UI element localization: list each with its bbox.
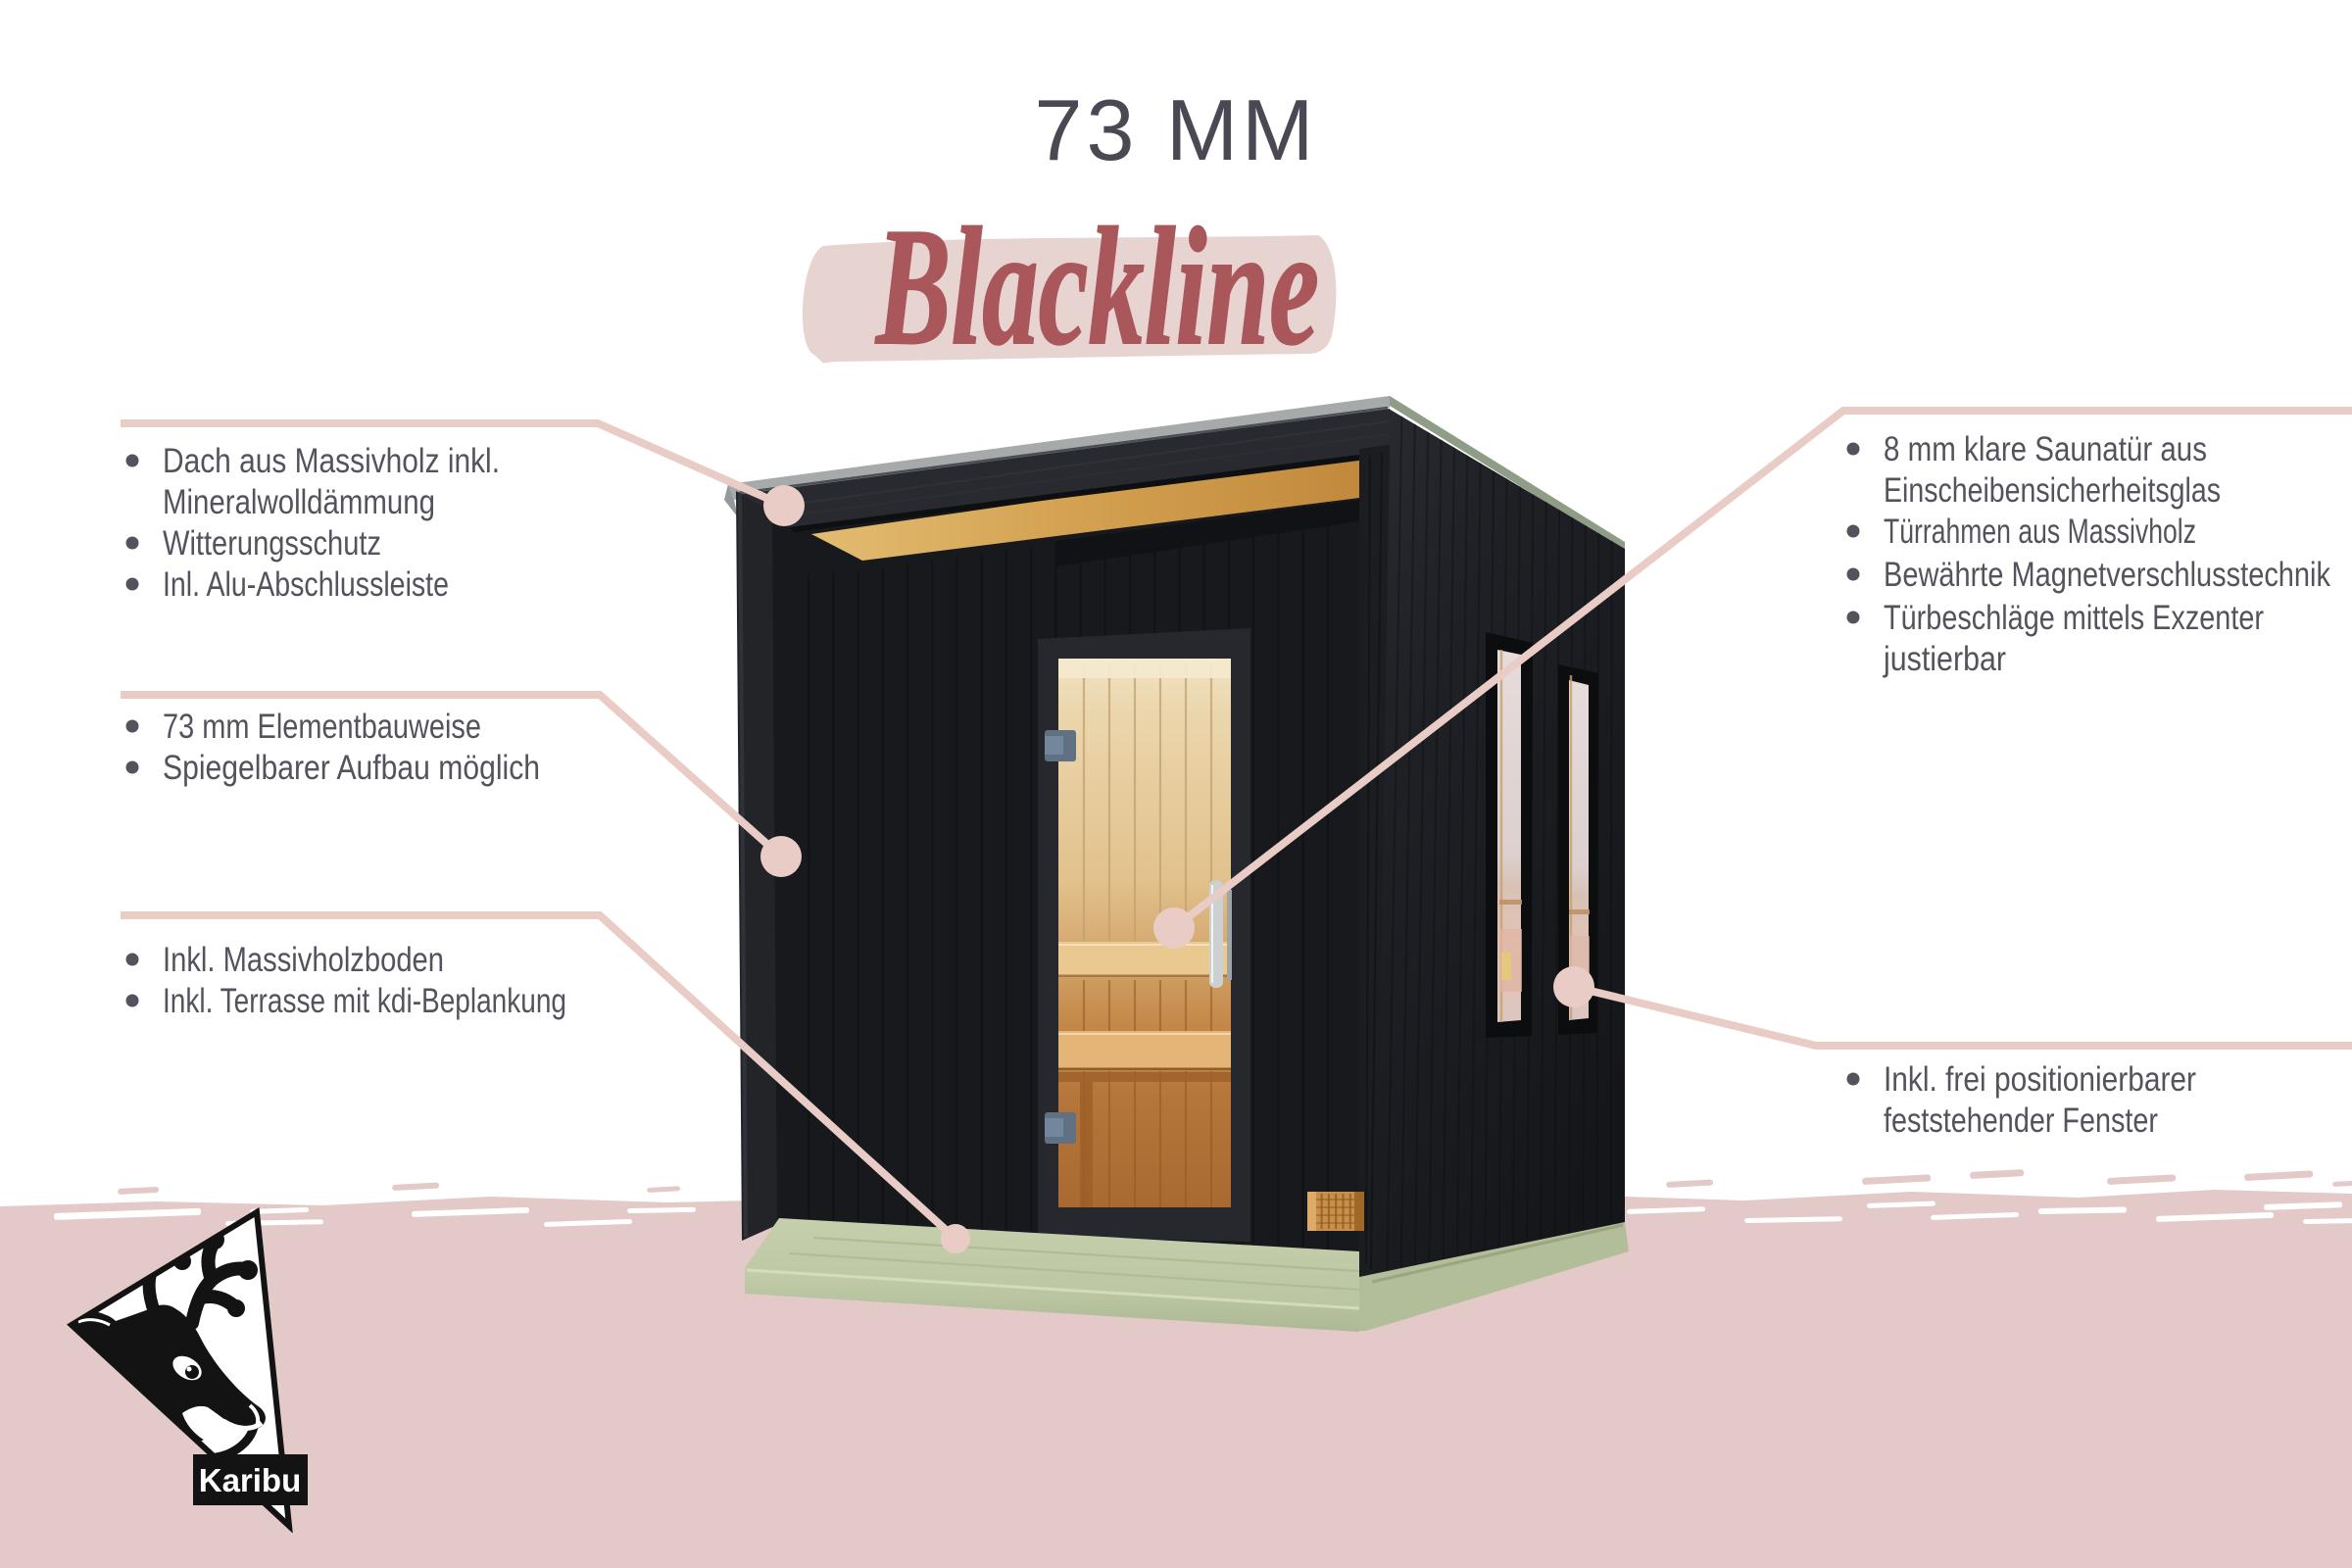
svg-text:Inkl. frei positionierbarer: Inkl. frei positionierbarer	[1884, 1060, 2196, 1099]
svg-text:Bewährte Magnetverschlusstechn: Bewährte Magnetverschlusstechnik	[1884, 556, 2330, 594]
svg-text:Einscheibensicherheitsglas: Einscheibensicherheitsglas	[1884, 471, 2221, 510]
svg-text:Türrahmen aus Massivholz: Türrahmen aus Massivholz	[1884, 513, 2196, 551]
svg-text:Karibu: Karibu	[199, 1462, 302, 1498]
svg-text:Inl. Alu-Abschlussleiste: Inl. Alu-Abschlussleiste	[163, 565, 449, 604]
svg-text:Witterungsschutz: Witterungsschutz	[163, 524, 381, 563]
svg-text:8 mm klare Saunatür aus: 8 mm klare Saunatür aus	[1884, 430, 2207, 468]
svg-text:73 mm Elementbauweise: 73 mm Elementbauweise	[163, 708, 481, 746]
svg-text:Inkl. Massivholzboden: Inkl. Massivholzboden	[163, 941, 444, 979]
svg-text:Dach aus Massivholz inkl.: Dach aus Massivholz inkl.	[163, 442, 500, 480]
svg-text:Inkl. Terrasse mit kdi-Beplank: Inkl. Terrasse mit kdi-Beplankung	[163, 982, 566, 1020]
svg-text:Mineralwolldämmung: Mineralwolldämmung	[163, 483, 435, 521]
svg-text:73 MM: 73 MM	[1035, 81, 1318, 178]
svg-text:justierbar: justierbar	[1883, 640, 2006, 678]
svg-text:Blackline: Blackline	[875, 194, 1319, 380]
svg-text:Spiegelbarer Aufbau möglich: Spiegelbarer Aufbau möglich	[163, 749, 540, 787]
svg-text:feststehender Fenster: feststehender Fenster	[1884, 1102, 2158, 1140]
svg-text:Türbeschläge mittels Exzenter: Türbeschläge mittels Exzenter	[1884, 599, 2264, 637]
